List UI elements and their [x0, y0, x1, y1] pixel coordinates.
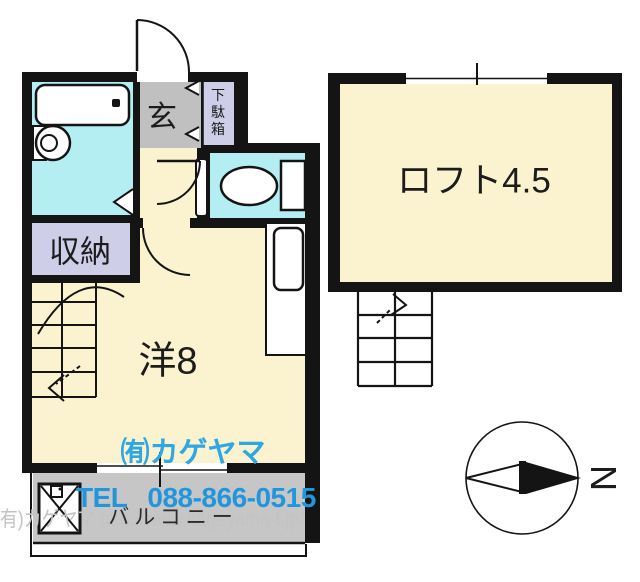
compass-north-label: N [584, 460, 622, 496]
entrance-door-arc [137, 20, 189, 72]
floorplan-canvas: 玄 下駄箱 収納 洋8 ロフト4.5 ㈲カゲヤマ TEL 088-866-051… [0, 0, 640, 582]
room-label-loft: ロフト4.5 [397, 153, 551, 204]
compass-needle-base [519, 461, 526, 494]
toilet-bowl [221, 167, 277, 205]
room-label-storage: 収納 [49, 227, 111, 272]
company-name: ㈲カゲヤマ [120, 429, 265, 471]
toilet-tank [281, 161, 305, 210]
bathtub-drain-icon [112, 99, 120, 107]
loft-ladder [358, 292, 432, 386]
storage-right-wall [130, 215, 140, 283]
toilet-door [196, 159, 207, 216]
room-label-shoe-cabinet: 下駄箱 [208, 88, 228, 139]
hallway-floor [140, 148, 197, 218]
ladder-arrow-head-icon [391, 294, 406, 315]
phone-number: 088-866-0515 [147, 482, 315, 514]
entrance-door-opening [137, 72, 188, 82]
room-label-entrance: 玄 [147, 92, 177, 136]
tel-label: TEL [76, 482, 127, 514]
room-label-western-room: 洋8 [138, 330, 197, 385]
appliance-space [274, 228, 303, 290]
room-door-opening [143, 218, 190, 228]
washer-faucet-dot [59, 488, 62, 491]
phone-row: TEL 088-866-0515 [76, 482, 316, 514]
